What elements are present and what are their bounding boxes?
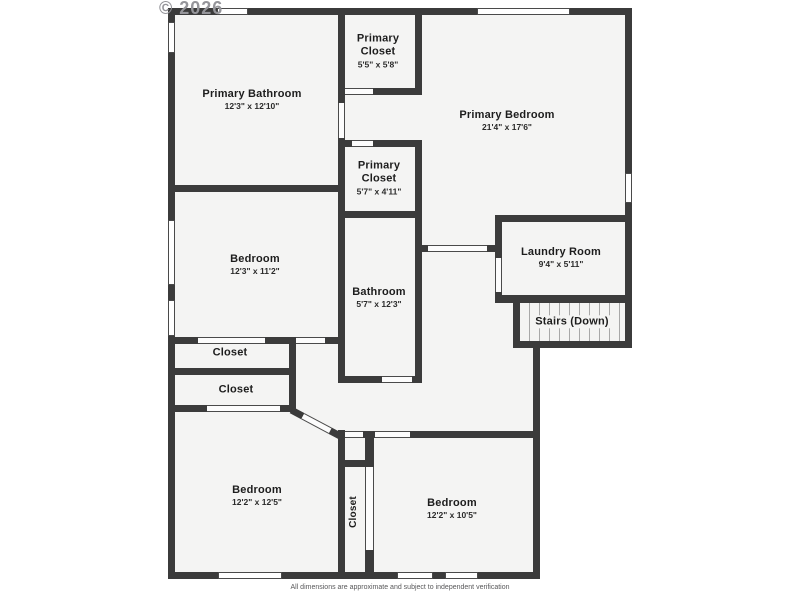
room-name: Primary Closet <box>349 159 409 186</box>
room-name: Bathroom <box>352 286 406 299</box>
door-primary-bathroom <box>338 103 345 138</box>
room-name: Closet <box>213 346 248 359</box>
wall-closet1-top-a <box>175 337 198 344</box>
room-name: Primary Bathroom <box>202 88 301 101</box>
wall-bathroom-bottom-b <box>412 376 422 383</box>
room-label-primary-closet-1: Primary Closet 5'5" x 5'8" <box>348 32 408 69</box>
wall-closet-strip-bottom-stub <box>365 550 374 572</box>
room-dimensions: 12'2" x 10'5" <box>427 511 477 521</box>
room-label-primary-bedroom: Primary Bedroom 21'4" x 17'6" <box>459 109 554 133</box>
door-primary-closet2 <box>352 140 373 147</box>
room-dimensions: 9'4" x 5'11" <box>521 260 601 270</box>
window-right-primary-bedroom <box>625 173 632 203</box>
room-dimensions: 5'5" x 5'8" <box>348 59 408 69</box>
wall-primary-closet2-bottom <box>345 211 422 218</box>
wall-primary-closet-right <box>415 8 422 95</box>
room-label-stairs: Stairs (Down) <box>531 315 613 328</box>
door-niche <box>345 431 363 438</box>
room-label-closet-vertical: Closet <box>348 496 360 528</box>
copyright-watermark: © 2026 <box>159 0 223 19</box>
wall-primary-closet-bottom <box>373 88 422 95</box>
wall-primary-entry-nub-right <box>487 245 495 252</box>
room-label-primary-bathroom: Primary Bathroom 12'3" x 12'10" <box>202 88 301 112</box>
wall-primary-closet-left-upper <box>338 8 345 103</box>
wall-br-bedroom-top-stub <box>363 431 375 438</box>
wall-hall-left <box>338 430 345 572</box>
wall-closet-divider <box>175 368 296 375</box>
wall-right-lower <box>533 341 540 579</box>
room-dimensions: 12'3" x 12'10" <box>202 102 301 112</box>
room-label-bedroom-bottom-left: Bedroom 12'2" x 12'5" <box>232 484 282 508</box>
room-dimensions: 21'4" x 17'6" <box>459 123 554 133</box>
room-label-bathroom: Bathroom 5'7" x 12'3" <box>352 286 406 310</box>
room-name: Stairs (Down) <box>531 315 613 328</box>
door-closet-strip <box>365 467 374 550</box>
room-label-laundry: Laundry Room 9'4" x 5'11" <box>521 246 601 270</box>
wall-bathroom-bottom-a <box>345 376 382 383</box>
wall-laundry-left-a <box>495 222 502 258</box>
room-name: Primary Closet <box>348 32 408 59</box>
wall-stairs-left <box>513 303 520 341</box>
wall-primary-closet2-top-b <box>373 140 422 147</box>
wall-left <box>168 8 175 579</box>
door-primary-closet <box>345 88 373 95</box>
room-dimensions: 12'3" x 11'2" <box>230 267 280 277</box>
wall-niche-bottom <box>345 460 374 467</box>
window-bottom-bedroom-right-b <box>445 572 478 579</box>
wall-bathroom-right <box>415 140 422 383</box>
wall-primary-closet2-top-a <box>345 140 352 147</box>
room-dimensions: 12'2" x 12'5" <box>232 498 282 508</box>
door-closet2 <box>207 405 280 412</box>
wall-stairs-bottom <box>513 341 632 348</box>
room-label-bedroom-bottom-right: Bedroom 12'2" x 10'5" <box>427 497 477 521</box>
door-primary-bedroom-entry <box>428 245 487 252</box>
wall-laundry-top <box>495 215 625 222</box>
disclaimer-text: All dimensions are approximate and subje… <box>168 584 632 591</box>
room-name: Bedroom <box>230 253 280 266</box>
wall-laundry-bottom <box>495 295 632 303</box>
room-name: Bedroom <box>232 484 282 497</box>
room-name: Bedroom <box>427 497 477 510</box>
room-dimensions: 5'7" x 4'11" <box>349 186 409 196</box>
window-top-primary-bedroom <box>477 8 570 15</box>
room-label-bedroom-left: Bedroom 12'3" x 11'2" <box>230 253 280 277</box>
window-bottom-bedroom-left <box>218 572 282 579</box>
room-name: Closet <box>348 496 360 528</box>
door-laundry <box>495 258 502 292</box>
door-bathroom <box>382 376 412 383</box>
window-left-bedroom-b <box>168 300 175 336</box>
wall-bedroom-bathroom-divider <box>175 185 338 192</box>
door-bedroom-bottom-right <box>375 431 410 438</box>
room-label-primary-closet-2: Primary Closet 5'7" x 4'11" <box>349 159 409 196</box>
door-bedroom-mid-left <box>296 337 325 344</box>
window-bottom-bedroom-right-a <box>397 572 433 579</box>
floor-plan: Primary Bathroom 12'3" x 12'10" Primary … <box>0 0 800 600</box>
wall-br-bedroom-top-main <box>410 431 533 438</box>
room-label-closet-1: Closet <box>213 346 248 359</box>
window-left-primary-bathroom <box>168 22 175 53</box>
wall-bathroom-left <box>338 138 345 383</box>
room-dimensions: 5'7" x 12'3" <box>352 300 406 310</box>
wall-closet2-bottom-a <box>175 405 207 412</box>
room-name: Laundry Room <box>521 246 601 259</box>
wall-closet1-top-b <box>265 337 296 344</box>
door-closet1 <box>198 337 265 344</box>
window-left-bedroom-a <box>168 220 175 285</box>
room-label-closet-2: Closet <box>219 383 254 396</box>
room-name: Closet <box>219 383 254 396</box>
room-name: Primary Bedroom <box>459 109 554 122</box>
wall-bedroom-door-foot <box>325 337 338 344</box>
